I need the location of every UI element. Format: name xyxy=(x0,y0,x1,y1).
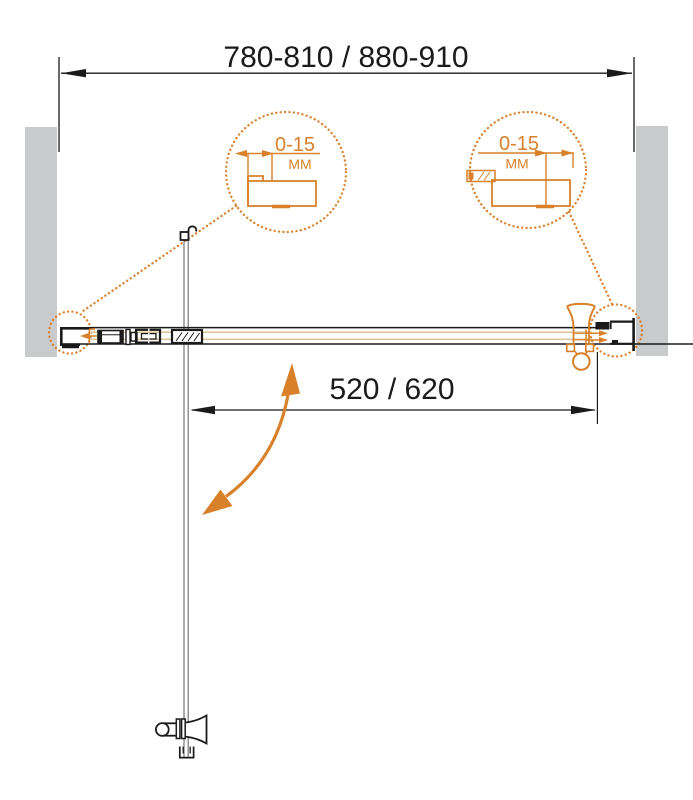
handle-knob-end xyxy=(156,723,169,736)
profile-section-right xyxy=(467,171,570,207)
leader-line-left xyxy=(83,206,236,311)
adjustment-unit-left: MM xyxy=(288,156,311,172)
handle-flare xyxy=(186,716,207,744)
detail-arrow-icon xyxy=(235,150,247,157)
wall-left xyxy=(25,127,57,357)
swing-arrow-up-icon xyxy=(281,363,300,397)
dimension-arrow-left-icon xyxy=(61,69,86,77)
detail-callout-left: 0-15 MM xyxy=(49,112,346,354)
walls xyxy=(25,126,668,357)
leader-line-right xyxy=(569,212,612,304)
dimension-arrow-right-icon xyxy=(571,406,596,414)
adjustment-unit-right: MM xyxy=(505,156,528,172)
adjustment-range-left: 0-15 xyxy=(275,134,315,156)
rail-hardware-block xyxy=(98,331,123,344)
door-width-label: 520 / 620 xyxy=(329,373,454,406)
callout-circle-left xyxy=(226,112,346,232)
dimension-arrow-right-icon xyxy=(607,69,632,77)
glass-clamp xyxy=(172,330,202,343)
handle-bracket xyxy=(180,747,194,758)
door-swing-arrow xyxy=(202,363,300,515)
shower-door-installation-diagram: 780-810 / 880-910 0-15 MM 0-15 MM xyxy=(0,0,693,800)
diagram-canvas: 780-810 / 880-910 0-15 MM 0-15 MM xyxy=(0,0,693,800)
wall-profile-right xyxy=(610,318,634,351)
door-top-hook xyxy=(181,226,197,240)
adjustment-range-right: 0-15 xyxy=(499,133,539,155)
door-width-dimension: 520 / 620 xyxy=(190,352,597,424)
profile-section-left xyxy=(248,176,316,207)
detail-callout-right: 0-15 MM xyxy=(467,112,642,357)
detail-arrow-icon xyxy=(562,150,574,157)
overall-width-label: 780-810 / 880-910 xyxy=(223,41,468,74)
detail-arrow-icon xyxy=(535,150,547,157)
door-handle xyxy=(156,716,207,758)
overall-width-dimension: 780-810 / 880-910 xyxy=(59,41,634,152)
door-panel xyxy=(181,226,197,757)
rail-end-block xyxy=(596,322,610,330)
dimension-arrow-left-icon xyxy=(190,406,215,414)
rail-assembly xyxy=(61,318,693,351)
